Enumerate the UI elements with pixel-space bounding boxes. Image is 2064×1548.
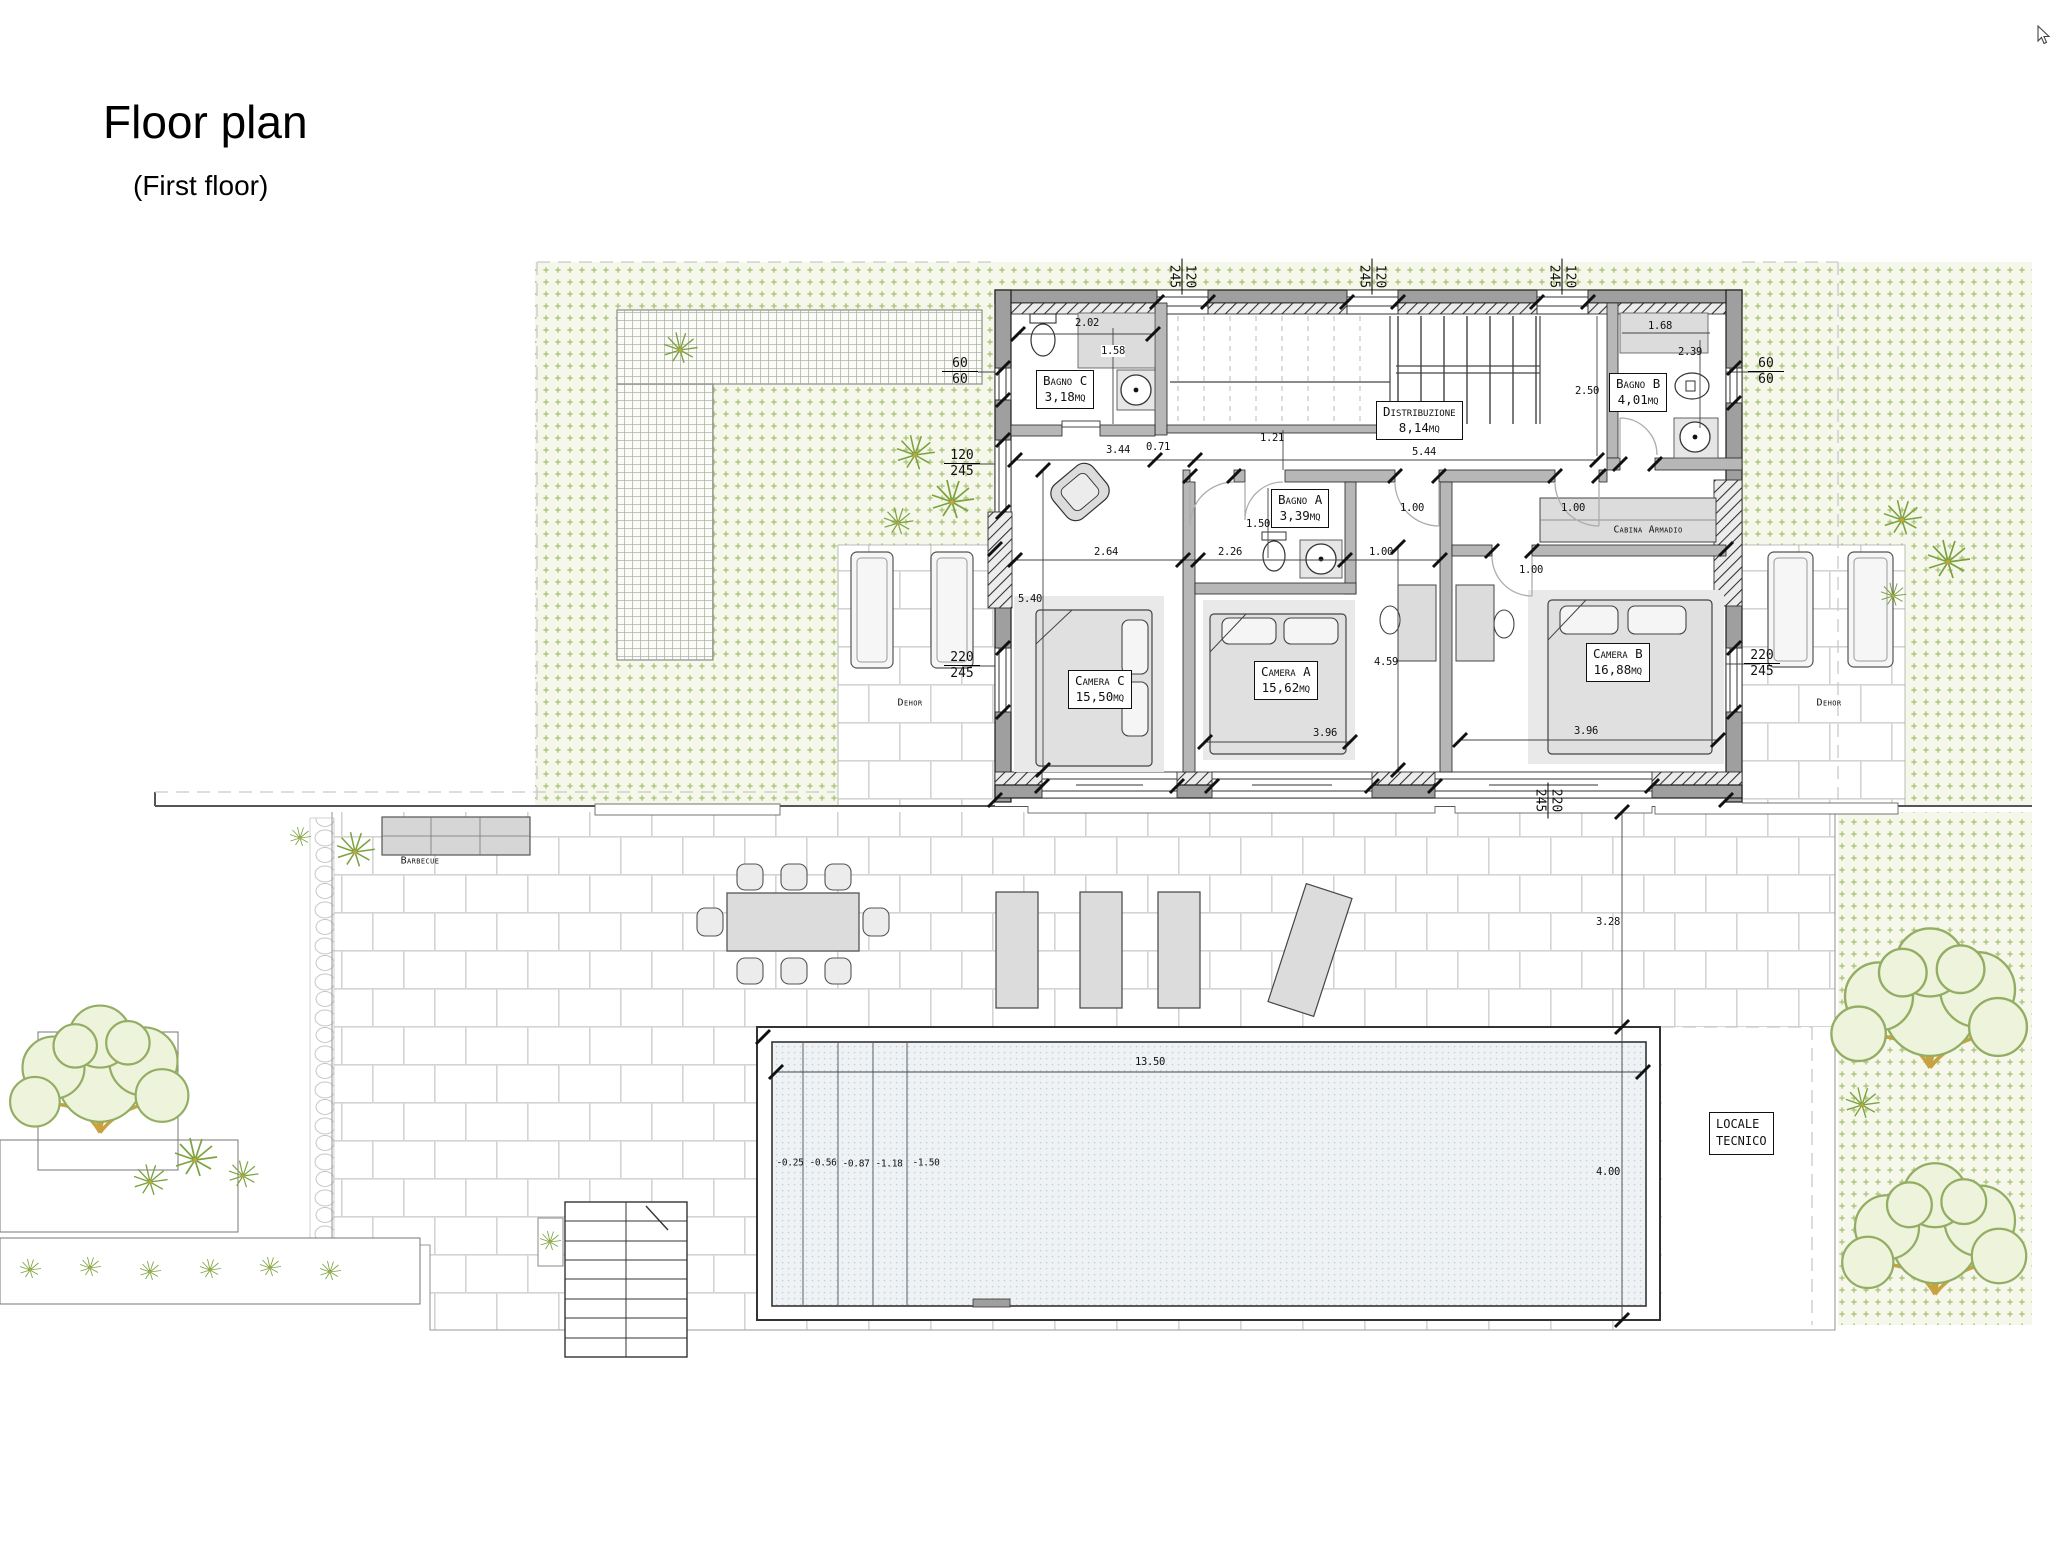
pool-depth-1: -0.25 xyxy=(776,1158,803,1169)
window-label-60-60-left: 6060 xyxy=(942,356,978,387)
labels-layer: Floor plan (First floor) Bagno C3,18mq D… xyxy=(0,0,2064,1548)
pool-depth-2: -0.56 xyxy=(809,1158,836,1169)
pool-depth-5: -1.50 xyxy=(912,1158,939,1169)
room-label-locale-tecnico: LOCALETECNICO xyxy=(1709,1112,1774,1155)
room-label-bagno-b: Bagno B4,01mq xyxy=(1609,373,1667,412)
dim-5-40: 5.40 xyxy=(1018,593,1042,605)
floor-plan-page: Floor plan (First floor) Bagno C3,18mq D… xyxy=(0,0,2064,1548)
dim-2-39: 2.39 xyxy=(1678,346,1702,358)
room-label-distribuzione: Distribuzione8,14mq xyxy=(1376,401,1463,440)
dim-1-00-a: 1.00 xyxy=(1369,546,1393,558)
window-label-60-60-right: 6060 xyxy=(1748,356,1784,387)
dim-4-00: 4.00 xyxy=(1596,1166,1620,1178)
dim-1-50: 1.50 xyxy=(1246,518,1270,530)
dim-4-59: 4.59 xyxy=(1374,656,1398,668)
dim-1-00-b: 1.00 xyxy=(1400,502,1424,514)
page-subtitle: (First floor) xyxy=(133,170,268,202)
dim-1-21: 1.21 xyxy=(1260,432,1284,444)
room-label-cabina-armadio: Cabina Armadio xyxy=(1613,525,1682,536)
pool-depth-4: -1.18 xyxy=(875,1159,902,1170)
room-label-bagno-a: Bagno A3,39mq xyxy=(1271,489,1329,528)
room-label-camera-c: Camera C15,50mq xyxy=(1068,670,1132,709)
room-label-barbecue: Barbecue xyxy=(401,856,440,867)
window-label-220-245-bottom: 220245 xyxy=(1533,783,1564,819)
window-label-120-245-top-1: 120245 xyxy=(1167,259,1198,295)
pool-depth-3: -0.87 xyxy=(842,1159,869,1170)
dim-1-68: 1.68 xyxy=(1648,320,1672,332)
dim-2-26: 2.26 xyxy=(1218,546,1242,558)
room-label-camera-b: Camera B16,88mq xyxy=(1586,643,1650,682)
room-label-bagno-c: Bagno C3,18mq xyxy=(1036,370,1094,409)
room-label-dehor-right: Dehor xyxy=(1817,698,1842,709)
window-label-120-245-top-2: 120245 xyxy=(1357,259,1388,295)
dim-3-96-a: 3.96 xyxy=(1313,727,1337,739)
dim-13-50: 13.50 xyxy=(1135,1056,1165,1068)
dim-3-28: 3.28 xyxy=(1596,916,1620,928)
room-label-dehor-left: Dehor xyxy=(898,698,923,709)
dim-2-64: 2.64 xyxy=(1094,546,1118,558)
room-label-camera-a: Camera A15,62mq xyxy=(1254,661,1318,700)
window-label-120-245-left: 120245 xyxy=(944,448,980,479)
dim-1-00-c: 1.00 xyxy=(1561,502,1585,514)
dim-3-44: 3.44 xyxy=(1106,444,1130,456)
window-label-220-245-right: 220245 xyxy=(1744,648,1780,679)
dim-5-44: 5.44 xyxy=(1412,446,1436,458)
dim-3-96-b: 3.96 xyxy=(1574,725,1598,737)
dim-0-71: 0.71 xyxy=(1146,441,1170,453)
dim-2-50: 2.50 xyxy=(1575,385,1599,397)
page-title: Floor plan xyxy=(103,95,308,149)
window-label-120-245-top-3: 120245 xyxy=(1547,259,1578,295)
window-label-220-245-left: 220245 xyxy=(944,650,980,681)
dim-1-00-d: 1.00 xyxy=(1519,564,1543,576)
dim-1-58: 1.58 xyxy=(1101,345,1125,357)
dim-2-02: 2.02 xyxy=(1075,317,1099,329)
